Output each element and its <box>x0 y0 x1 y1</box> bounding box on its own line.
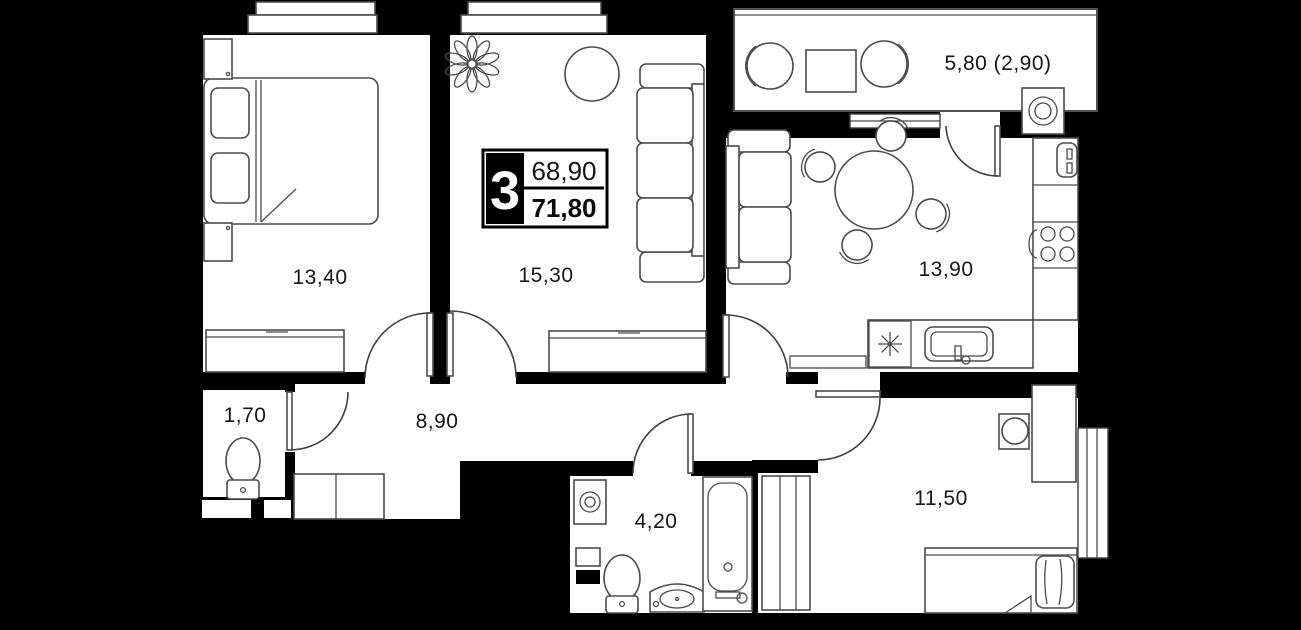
pillow <box>211 88 249 138</box>
dining-table <box>835 151 913 229</box>
wall-details <box>752 460 818 473</box>
dresser-living-room <box>549 331 706 372</box>
bath-shelf <box>576 548 600 566</box>
bath-niche <box>576 570 600 584</box>
pillow <box>1036 556 1074 608</box>
hall-wardrobe <box>294 474 384 519</box>
wall-niche <box>202 500 251 518</box>
dresser-bedroom-main <box>206 330 344 372</box>
floor-plan-svg: 3 68,90 71,80 <box>0 0 1301 630</box>
desk <box>1032 385 1076 482</box>
balcony-sink-icon <box>1022 88 1064 134</box>
bay-window-living-room <box>461 2 607 33</box>
kitchen-counter-right <box>1029 138 1078 320</box>
label-wc: 1,70 <box>224 404 267 427</box>
toilet-icon <box>604 555 640 613</box>
balcony-chair <box>861 41 908 87</box>
rooms-count: 3 <box>490 161 520 221</box>
pillow <box>211 153 249 203</box>
bathtub-icon <box>703 477 752 611</box>
vanity-sink-icon <box>650 584 704 612</box>
label-bedroom-second: 11,50 <box>914 487 968 510</box>
single-bed <box>925 548 1077 613</box>
wall-niche <box>264 500 291 518</box>
label-bedroom-main: 13,40 <box>292 266 347 289</box>
desk-chair-icon <box>999 414 1029 449</box>
area-with-balcony: 71,80 <box>531 193 596 223</box>
double-bed <box>204 78 378 224</box>
side-table <box>565 47 619 101</box>
fridge-icon <box>1057 143 1077 177</box>
label-living-room: 15,30 <box>518 264 573 287</box>
hallway-furniture <box>294 474 384 519</box>
label-kitchen: 13,90 <box>918 258 973 281</box>
balcony-chair <box>746 43 793 89</box>
label-bathroom: 4,20 <box>635 510 678 533</box>
unit-info-card: 3 68,90 71,80 <box>483 150 607 227</box>
wc-furniture <box>226 438 260 499</box>
washing-machine-icon <box>574 480 606 524</box>
sink-icon <box>925 327 993 364</box>
sofa-living-room <box>637 64 704 282</box>
toilet-icon <box>226 438 260 499</box>
area-total: 68,90 <box>531 156 596 186</box>
sofa-kitchen <box>726 130 791 284</box>
sliding-wardrobe <box>762 476 810 610</box>
label-hallway: 8,90 <box>416 410 459 433</box>
window-bedroom-second <box>1078 428 1108 558</box>
label-balcony: 5,80 (2,90) <box>944 52 1051 75</box>
bay-window-bedroom-main <box>248 2 377 33</box>
apartment-floor-plan: 3 68,90 71,80 <box>0 0 1301 630</box>
balcony-table <box>806 50 856 92</box>
